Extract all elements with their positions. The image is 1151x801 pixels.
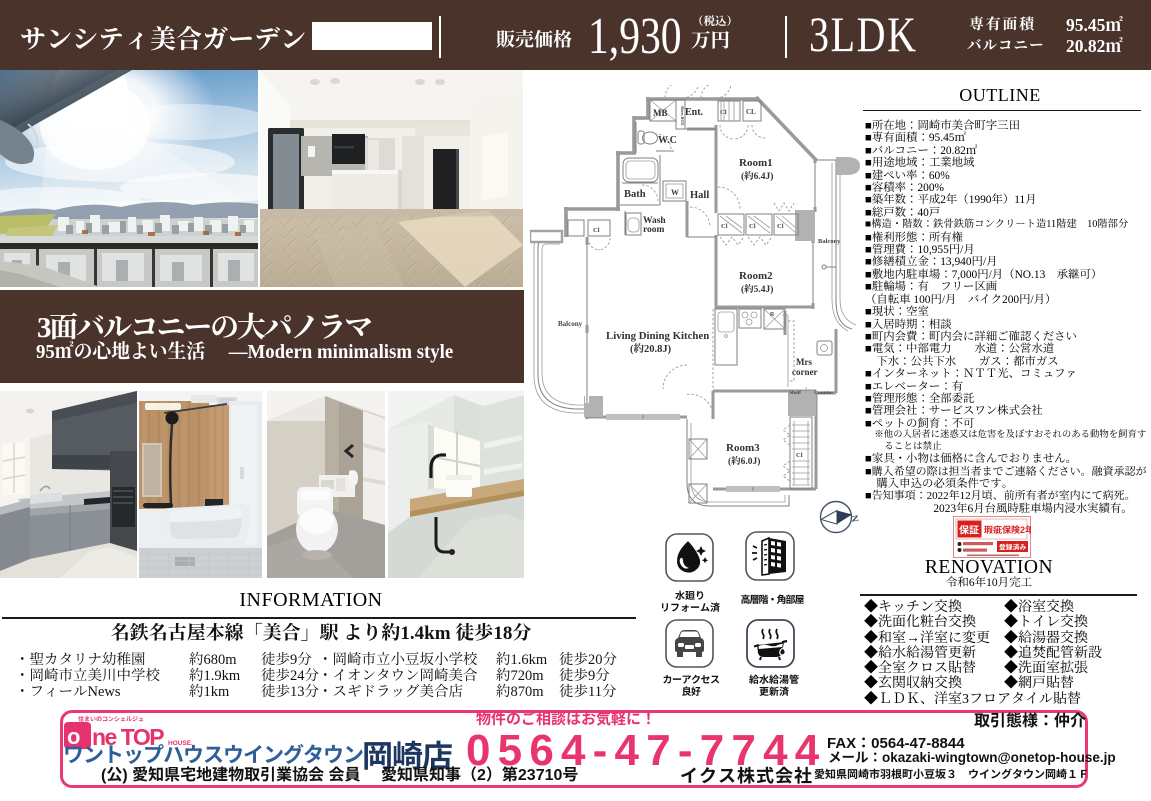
svg-text:保証: 保証 [959,525,979,537]
svg-text:W.C: W.C [658,135,677,146]
svg-text:Shelf: Shelf [789,390,801,396]
svg-text:(約6.0J): (約6.0J) [728,455,760,467]
svg-text:瑕疵保険2年: 瑕疵保険2年 [984,525,1031,535]
svg-text:Cl: Cl [777,223,784,230]
svg-text:Mrs: Mrs [796,357,812,367]
svg-text:住まいのコンシェルジュ: 住まいのコンシェルジュ [78,715,144,723]
svg-text:Living Dining Kitchen: Living Dining Kitchen [606,330,709,342]
svg-text:Counter: Counter [814,390,834,396]
svg-text:W: W [671,188,679,197]
svg-text:Room1: Room1 [739,157,773,169]
svg-text:R: R [770,312,775,318]
svg-text:Cl: Cl [749,223,756,230]
svg-text:room: room [643,225,665,235]
svg-text:Ent.: Ent. [685,107,704,118]
svg-text:Room2: Room2 [739,270,773,282]
svg-text:登録済み: 登録済み [999,544,1026,552]
svg-text:Cl: Cl [720,109,727,116]
svg-text:(約20.8J): (約20.8J) [630,343,672,355]
svg-text:(約6.4J): (約6.4J) [741,170,773,182]
svg-text:MB: MB [653,108,668,118]
svg-text:Balcony: Balcony [558,320,583,328]
svg-text:Cl: Cl [721,223,728,230]
svg-text:corner: corner [792,367,817,377]
svg-text:Bath: Bath [624,189,646,200]
svg-text:(約5.4J): (約5.4J) [741,283,773,295]
svg-text:Room3: Room3 [726,442,760,454]
svg-text:Cl: Cl [796,452,803,459]
svg-text:Cl: Cl [593,227,600,234]
svg-text:N: N [848,514,860,524]
svg-text:Balcony: Balcony [818,238,841,245]
svg-text:CL: CL [746,108,756,116]
svg-text:Hall: Hall [690,190,709,201]
